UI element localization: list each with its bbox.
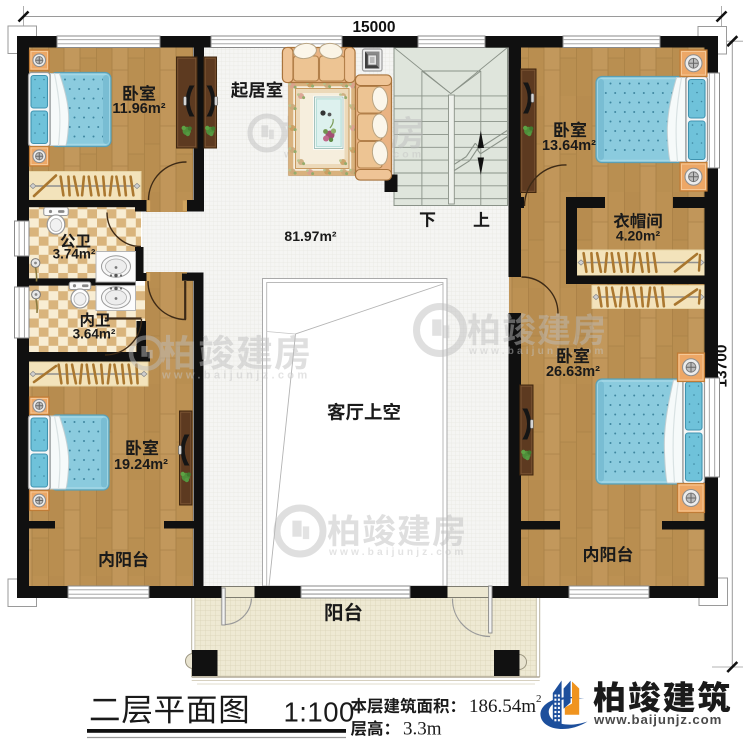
svg-text:3.74m²: 3.74m² — [53, 247, 96, 262]
svg-text:3.64m²: 3.64m² — [73, 327, 116, 342]
svg-text:15000: 15000 — [352, 19, 395, 36]
svg-text:26.63m²: 26.63m² — [546, 364, 600, 380]
svg-text:3.3m: 3.3m — [403, 719, 442, 740]
svg-text:13.64m²: 13.64m² — [542, 138, 596, 154]
svg-text:4.20m²: 4.20m² — [616, 228, 661, 244]
svg-text:2: 2 — [536, 693, 542, 705]
svg-text:www.baijunjz.com: www.baijunjz.com — [593, 712, 722, 727]
svg-text:81.97m²: 81.97m² — [284, 228, 336, 244]
svg-text:11.96m²: 11.96m² — [112, 101, 165, 117]
svg-text:www.baijunjz.com: www.baijunjz.com — [328, 547, 467, 558]
svg-text:19.24m²: 19.24m² — [114, 457, 168, 473]
svg-text:1:100: 1:100 — [284, 697, 355, 728]
svg-text:186.54m: 186.54m — [469, 696, 536, 717]
svg-text:www.baijunjz.com: www.baijunjz.com — [161, 370, 311, 382]
